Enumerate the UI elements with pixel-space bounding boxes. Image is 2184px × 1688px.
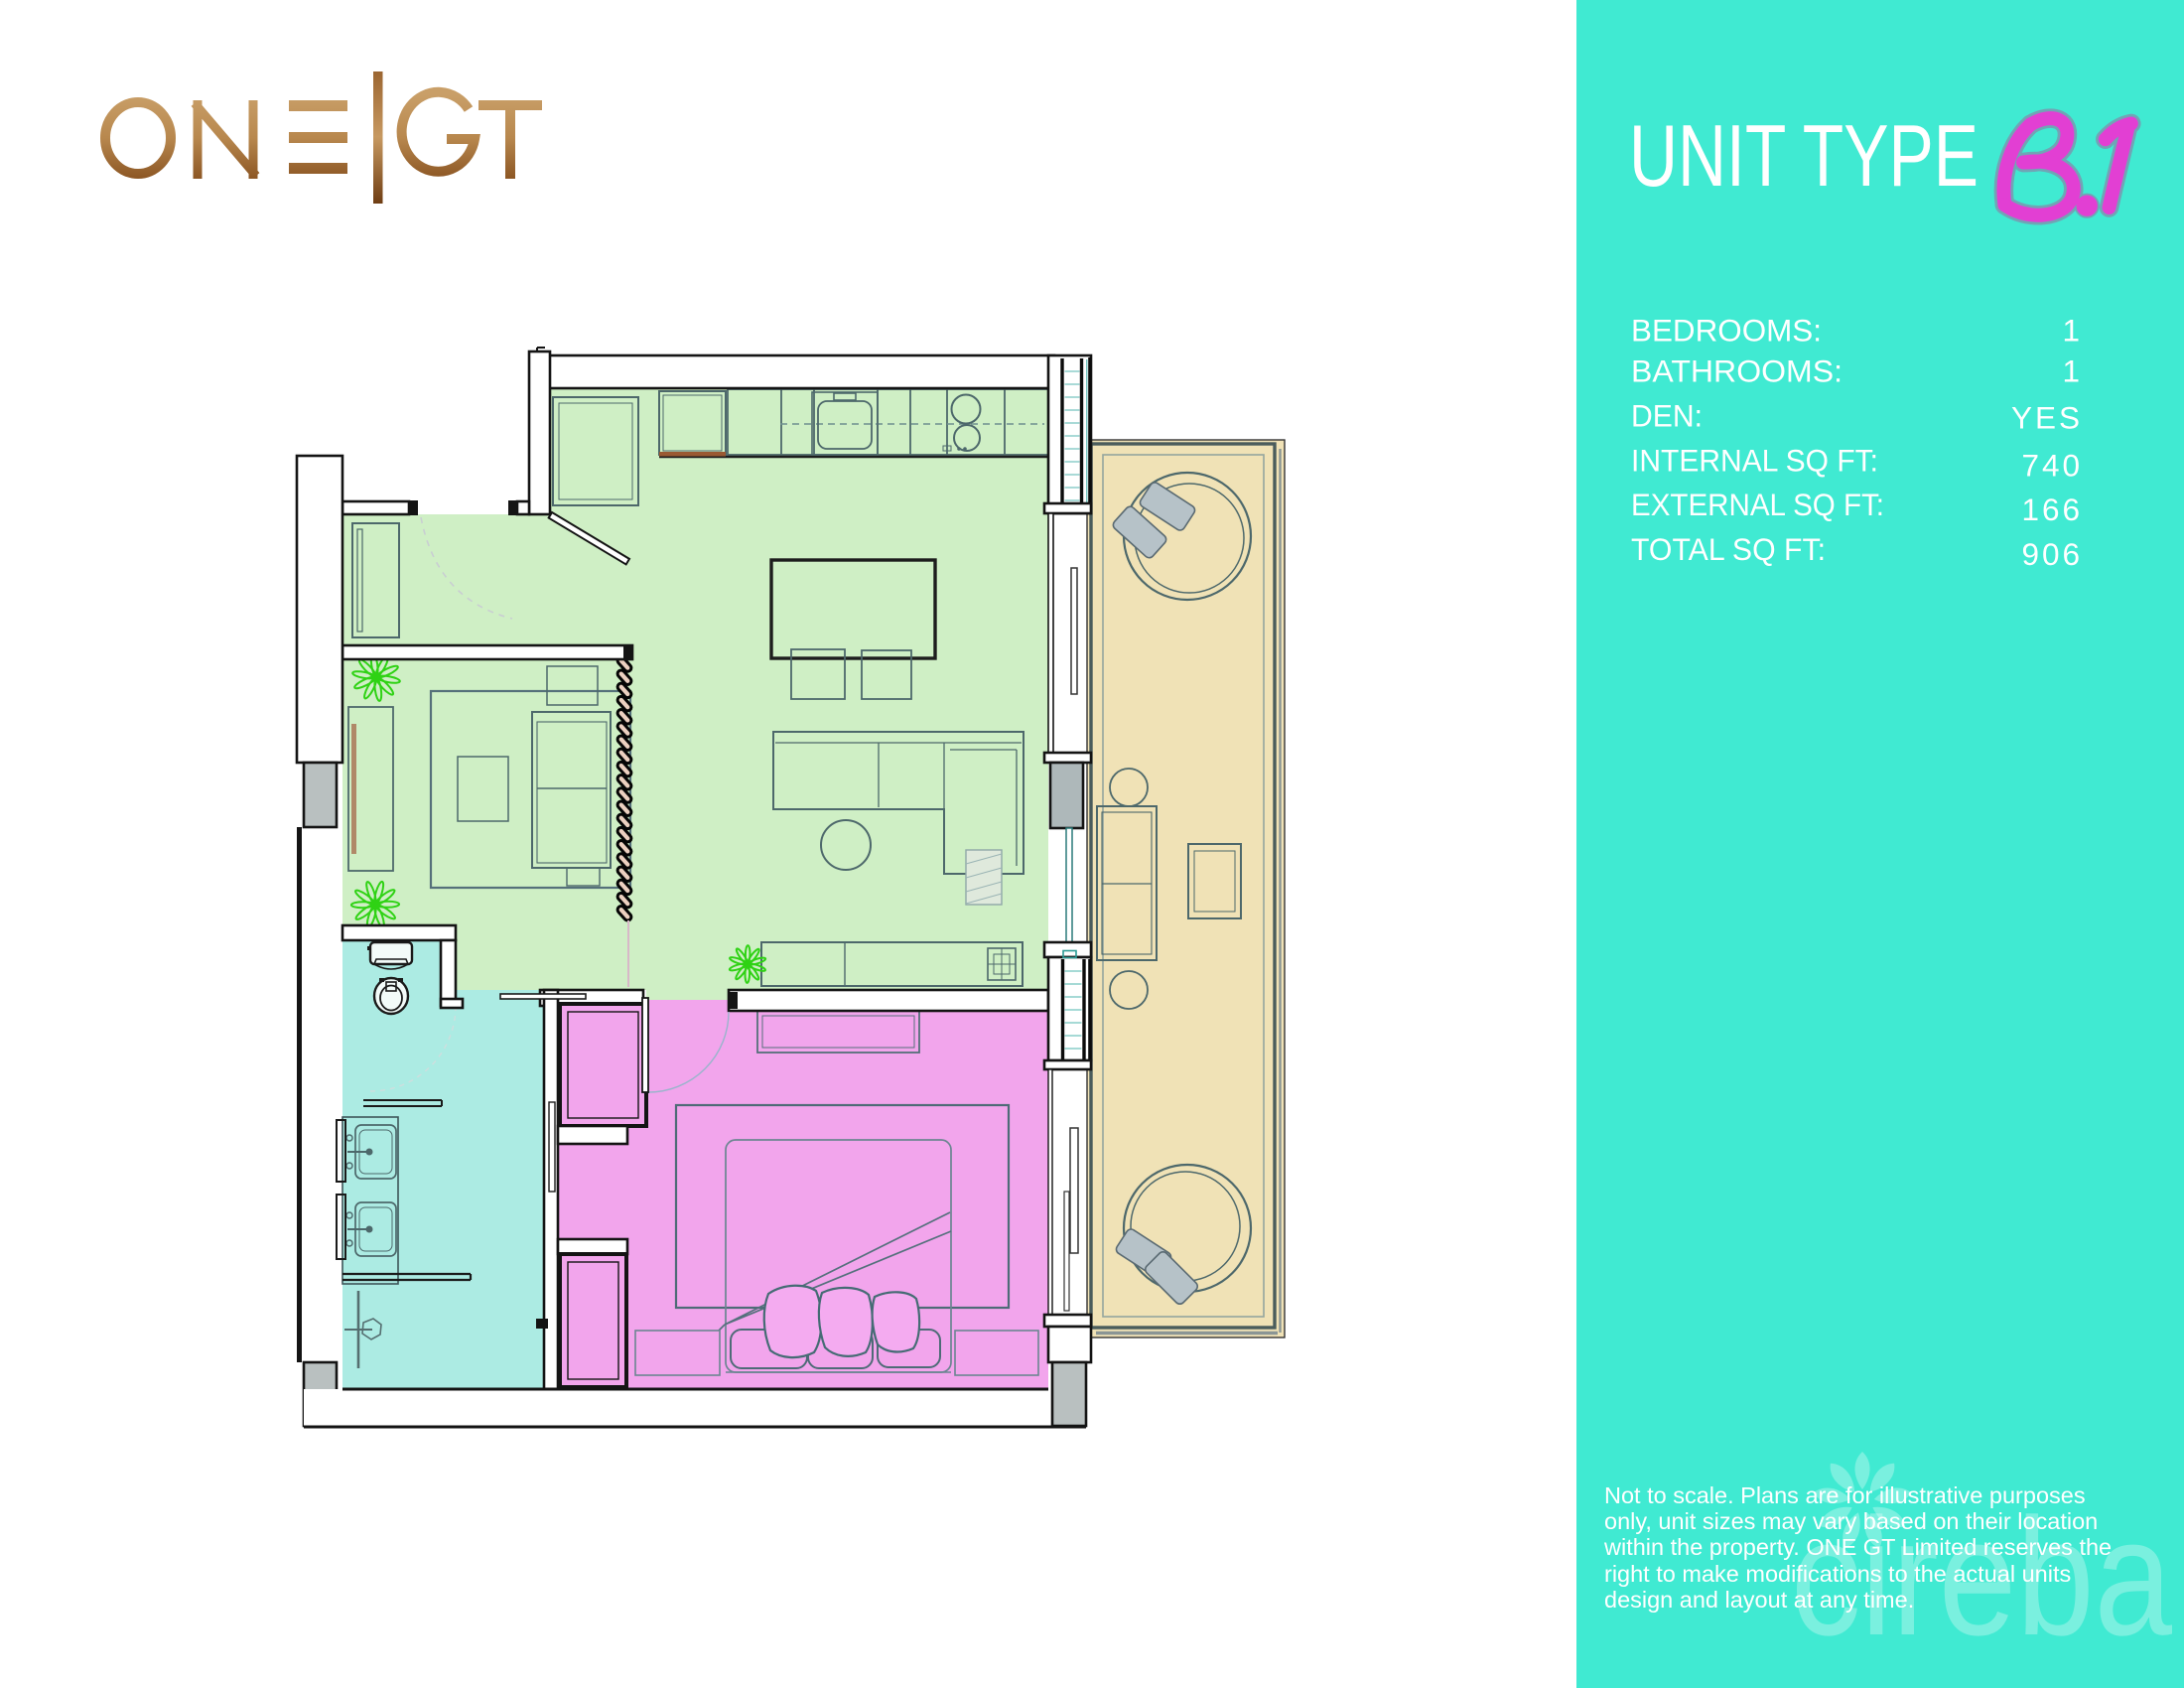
svg-text:UNIT TYPE: UNIT TYPE: [1629, 106, 1979, 205]
svg-text:906: 906: [2021, 536, 2083, 572]
svg-text:BEDROOMS:: BEDROOMS:: [1631, 313, 1822, 349]
svg-text:only, unit sizes may vary base: only, unit sizes may vary based on their…: [1604, 1508, 2098, 1534]
svg-text:YES: YES: [2011, 400, 2083, 436]
svg-text:within the property. ONE GT Li: within the property. ONE GT Limited rese…: [1603, 1534, 2112, 1560]
svg-text:740: 740: [2021, 448, 2083, 484]
svg-text:1: 1: [2062, 313, 2083, 349]
svg-text:BATHROOMS:: BATHROOMS:: [1631, 353, 1843, 389]
svg-text:166: 166: [2021, 492, 2083, 527]
svg-text:EXTERNAL SQ FT:: EXTERNAL SQ FT:: [1631, 487, 1884, 522]
svg-text:TOTAL SQ FT:: TOTAL SQ FT:: [1631, 531, 1826, 567]
svg-text:1: 1: [2062, 353, 2083, 389]
svg-text:right to make modifications to: right to make modifications to the actua…: [1604, 1561, 2071, 1587]
svg-text:design and layout at any time.: design and layout at any time.: [1604, 1587, 1914, 1613]
svg-text:DEN:: DEN:: [1631, 398, 1703, 434]
svg-text:Not to scale. Plans are for il: Not to scale. Plans are for illustrative…: [1604, 1482, 2086, 1508]
svg-text:INTERNAL SQ FT:: INTERNAL SQ FT:: [1631, 443, 1878, 479]
